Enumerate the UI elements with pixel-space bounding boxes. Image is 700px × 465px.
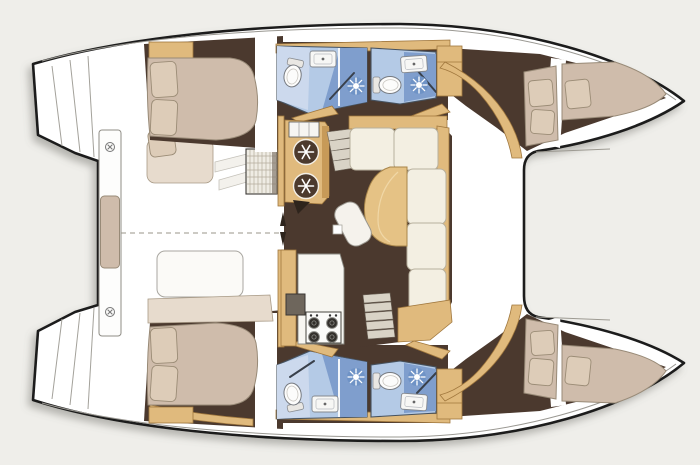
pillow xyxy=(565,79,592,109)
sofa-cushion xyxy=(350,128,395,170)
floorplan-canvas xyxy=(0,0,700,465)
toilet xyxy=(373,77,401,94)
stbd-berth-head xyxy=(148,295,273,323)
catamaran-floorplan xyxy=(0,0,700,465)
port-bathroom-aft xyxy=(277,46,367,114)
toilet xyxy=(373,373,401,390)
sink xyxy=(310,51,336,67)
table-leg-marker xyxy=(333,225,342,234)
pillow xyxy=(150,327,178,363)
stove xyxy=(306,312,341,343)
port-bathroom-forward xyxy=(371,48,436,104)
sink xyxy=(400,393,427,411)
cockpit-table xyxy=(246,149,277,194)
stbd-bulkhead-band xyxy=(255,313,277,430)
shower-head xyxy=(408,368,426,386)
sofa-cushion xyxy=(407,223,446,270)
aft-bench-cushion xyxy=(101,196,120,268)
galley-fridge-unit xyxy=(285,120,329,204)
pillow xyxy=(150,365,178,402)
shower-head xyxy=(410,76,428,94)
sink xyxy=(400,55,427,73)
shower-head xyxy=(347,77,365,95)
pillow xyxy=(530,330,555,356)
sink xyxy=(312,396,338,412)
galley-sink xyxy=(286,294,305,315)
sofa-cushion xyxy=(407,169,446,224)
pillow xyxy=(528,79,554,107)
port-aft-wardrobe xyxy=(149,42,193,58)
stbd-aft-wardrobe xyxy=(149,407,193,423)
pillow xyxy=(528,358,554,386)
sofa-cushion xyxy=(394,128,438,170)
stbd-bathroom-aft xyxy=(277,351,367,419)
shower-head xyxy=(347,368,365,386)
sofa-backrest xyxy=(349,116,447,129)
pillow xyxy=(565,356,592,386)
stbd-bathroom-forward xyxy=(371,361,436,417)
cleat-starboard xyxy=(106,308,115,317)
pillow xyxy=(150,99,178,135)
saloon xyxy=(278,104,452,359)
pillow xyxy=(150,61,178,98)
stairs-to-starboard-hull xyxy=(363,293,395,339)
saloon-aft-wall xyxy=(278,116,284,206)
galley xyxy=(281,250,344,346)
cockpit-bench-starboard xyxy=(157,251,243,297)
pillow xyxy=(530,109,555,135)
cleat-port xyxy=(106,143,115,152)
port-bulkhead-band xyxy=(255,35,277,152)
